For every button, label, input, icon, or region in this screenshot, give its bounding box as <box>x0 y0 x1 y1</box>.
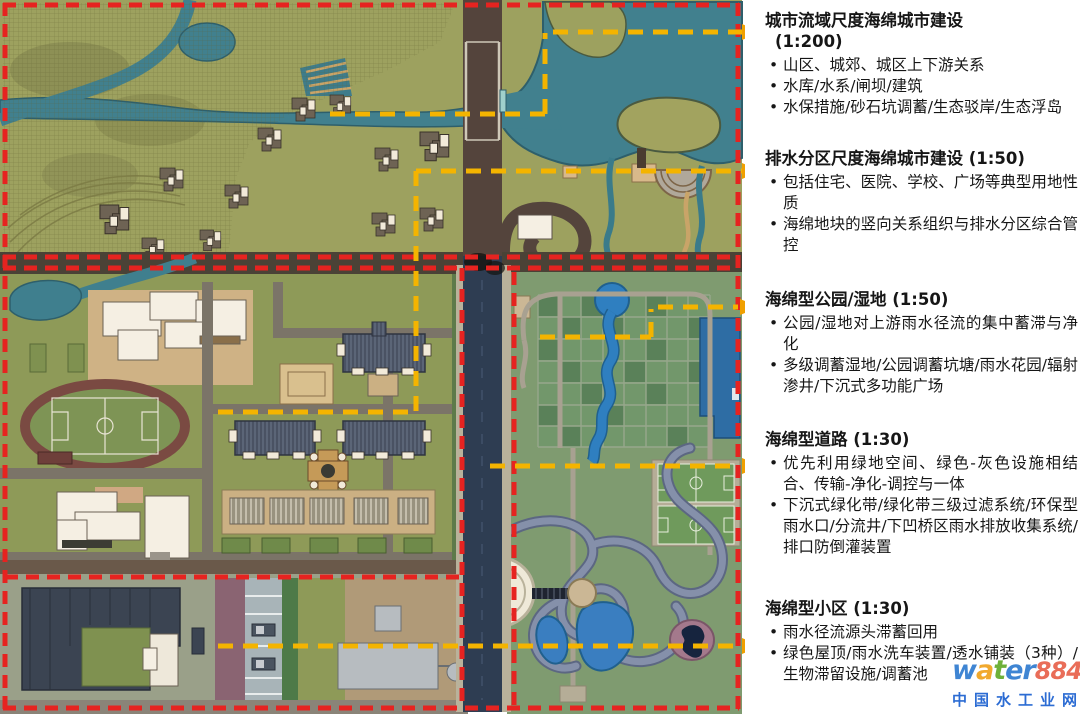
annotation-bullets: •优先利用绿地空间、绿色-灰色设施相结合、传输-净化-调控与一体 •下沉式绿化带… <box>763 453 1078 558</box>
bio-retention-pond <box>670 620 714 660</box>
annotation-bullets: •雨水径流源头滞蓄回用 •绿色屋顶/雨水洗车装置/透水铺装（3种）/生物滞留设施… <box>763 622 1078 685</box>
bullet-dot: • <box>769 55 783 76</box>
small-building <box>368 374 398 396</box>
arrow-icon <box>742 24 745 40</box>
wetland-grid <box>538 295 710 447</box>
bullet-item: •海绵地块的竖向关系组织与排水分区综合管控 <box>763 214 1078 256</box>
annotation-bullets: •公园/湿地对上游雨水径流的集中蓄滞与净化 •多级调蓄湿地/公园调蓄坑塘/雨水花… <box>763 313 1078 397</box>
arrow-icon <box>742 163 745 179</box>
bullet-item: •包括住宅、医院、学校、广场等典型用地性质 <box>763 172 1078 214</box>
parking-strip <box>245 578 282 702</box>
watershed-section <box>0 0 742 268</box>
site-plan-map <box>0 0 745 715</box>
annotation-residential: 海绵型小区 (1:30) •雨水径流源头滞蓄回用 •绿色屋顶/雨水洗车装置/透水… <box>763 598 1078 685</box>
bullet-item: •多级调蓄湿地/公园调蓄坑塘/雨水花园/辐射渗井/下沉式多功能广场 <box>763 355 1078 397</box>
mauve-strip <box>215 578 245 702</box>
annotation-watershed: 城市流域尺度海绵城市建设 (1:200) •山区、城郊、城区上下游关系 •水库/… <box>763 10 1078 118</box>
bullet-item: •绿色屋顶/雨水洗车装置/透水铺装（3种）/生物滞留设施/调蓄池 <box>763 643 1078 685</box>
court-small <box>30 344 46 372</box>
watermark-site-name: 中国水工业网 <box>952 689 1080 710</box>
bullet-dot: • <box>769 313 783 355</box>
bullet-dot: • <box>769 622 783 643</box>
annotation-title: 排水分区尺度海绵城市建设 (1:50) <box>763 148 1078 169</box>
annotation-title: 海绵型公园/湿地 (1:50) <box>763 289 1078 310</box>
residential-section <box>0 560 468 714</box>
arrow-icon <box>742 458 745 474</box>
bullet-item: •山区、城郊、城区上下游关系 <box>763 55 1078 76</box>
bullet-item: •公园/湿地对上游雨水径流的集中蓄滞与净化 <box>763 313 1078 355</box>
site-plan-svg <box>0 0 745 715</box>
bullet-dot: • <box>769 76 783 97</box>
arrow-icon <box>740 299 745 315</box>
annotation-bullets: •山区、城郊、城区上下游关系 •水库/水系/闸坝/建筑 •水保措施/砂石坑调蓄/… <box>763 55 1078 118</box>
bullet-item: •优先利用绿地空间、绿色-灰色设施相结合、传输-净化-调控与一体 <box>763 453 1078 495</box>
bullet-dot: • <box>769 643 783 685</box>
annotation-park-wetland: 海绵型公园/湿地 (1:50) •公园/湿地对上游雨水径流的集中蓄滞与净化 •多… <box>763 289 1078 397</box>
bullet-dot: • <box>769 97 783 118</box>
annotation-drainage: 排水分区尺度海绵城市建设 (1:50) •包括住宅、医院、学校、广场等典型用地性… <box>763 148 1078 256</box>
annotation-road: 海绵型道路 (1:30) •优先利用绿地空间、绿色-灰色设施相结合、传输-净化-… <box>763 429 1078 558</box>
annotation-title: 城市流域尺度海绵城市建设 (1:200) <box>763 10 1078 52</box>
sponge-city-slide: 城市流域尺度海绵城市建设 (1:200) •山区、城郊、城区上下游关系 •水库/… <box>0 0 1080 715</box>
bullet-dot: • <box>769 214 783 256</box>
annotation-title: 海绵型道路 (1:30) <box>763 429 1078 450</box>
bullet-item: •下沉式绿化带/绿化带三级过滤系统/环保型雨水口/分流井/下凹桥区雨水排放收集系… <box>763 495 1078 558</box>
bullet-dot: • <box>769 355 783 397</box>
bullet-dot: • <box>769 172 783 214</box>
bullet-dot: • <box>769 495 783 558</box>
arrow-icon <box>742 638 745 654</box>
bullet-item: •水保措施/砂石坑调蓄/生态驳岸/生态浮岛 <box>763 97 1078 118</box>
annotation-bullets: •包括住宅、医院、学校、广场等典型用地性质 •海绵地块的竖向关系组织与排水分区综… <box>763 172 1078 256</box>
court-small <box>68 344 84 372</box>
running-track <box>25 384 185 468</box>
bullet-item: •雨水径流源头滞蓄回用 <box>763 622 1078 643</box>
factory-building <box>22 588 180 690</box>
bullet-dot: • <box>769 453 783 495</box>
kiosk <box>192 628 204 654</box>
industry-building <box>338 643 438 689</box>
industry-small <box>375 606 401 631</box>
annotation-title: 海绵型小区 (1:30) <box>763 598 1078 619</box>
fountain <box>308 450 348 492</box>
green-buffer <box>282 578 298 702</box>
bullet-item: •水库/水系/闸坝/建筑 <box>763 76 1078 97</box>
path-pad <box>560 686 586 702</box>
eco-island <box>618 98 721 153</box>
